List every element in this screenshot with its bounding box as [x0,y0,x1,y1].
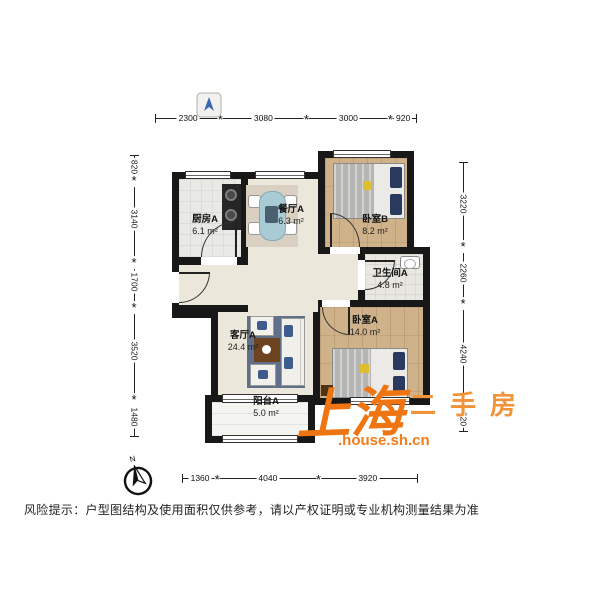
dimension-segment: 3080 [220,111,306,125]
room-label-kitchen-a: 厨房A 6.1 m² [192,214,218,237]
dimension-value: 2260 [459,261,468,284]
dimension-value: 3520 [130,339,139,362]
compass-north-label: N [129,454,137,464]
window [222,435,298,443]
pillow-icon [390,194,402,215]
dimension-value: 920 [394,114,412,123]
pillow-icon [393,352,405,370]
window [185,171,231,179]
dimension-segment: 4040 [217,471,318,485]
dimension-value: 4040 [256,474,279,483]
dimension-segment: 3000 [306,111,390,125]
dimension-segment: 1700 [127,260,141,305]
door-gap [322,300,350,307]
door-gap [201,257,237,265]
disclaimer-text: 风险提示：户型图结构及使用面积仅供参考，请以产权证明或专业机构测量结果为准 [24,501,479,518]
dimension-value: 3220 [459,192,468,215]
dimension-value: 3000 [337,114,360,123]
dimension-segment: 3140 [127,178,141,260]
dimension-value: 1700 [130,271,139,294]
dimension-segment: 3920 [319,471,417,485]
dimension-value: 3140 [130,207,139,230]
dimension-value: 1360 [189,474,212,483]
dimension-segment: 3520 [127,305,141,397]
room-label-bedroom-a: 卧室A 14.0 m² [350,315,381,338]
room-label-living-a: 客厅A 24.4 m² [228,330,259,353]
compass-icon: N [118,452,158,502]
room-label-dining-a: 餐厅A 6.3 m² [278,204,304,227]
watermark-site: .house.sh.cn [338,432,430,449]
north-arrow-icon[interactable] [196,92,222,118]
dimension-segment: 920 [390,111,416,125]
dimension-value: 4240 [459,343,468,366]
dimension-line-bottom: 136040403920 [182,471,418,485]
door-gap [358,260,365,290]
dimension-value: 3080 [252,114,275,123]
dimension-value: 3920 [356,474,379,483]
door-gap [330,247,360,254]
window [333,150,391,158]
watermark-brand2: 二手房 [410,390,530,420]
window [255,171,305,179]
room-label-balcony-a: 阳台A 5.0 m² [253,396,279,419]
dimension-segment: 1360 [183,471,217,485]
bed-icon [333,163,405,219]
armchair-icon [250,364,276,386]
dimension-value: 1480 [130,405,139,428]
dimension-line-top: 230030803000920 [155,111,417,125]
dimension-line-left: 8203140170035201480 [127,155,141,437]
floor-corridor [315,254,358,300]
dimension-segment: 2260 [456,244,470,301]
dimension-segment: 3220 [456,163,470,244]
sofa-icon [281,318,305,386]
pillow-icon [390,167,402,188]
dimension-segment: 1480 [127,397,141,436]
room-label-bedroom-b: 卧室B 8.2 m² [362,214,388,237]
room-label-bathroom-a: 卫生间A 4.8 m² [372,268,407,291]
door-gap [172,272,179,303]
